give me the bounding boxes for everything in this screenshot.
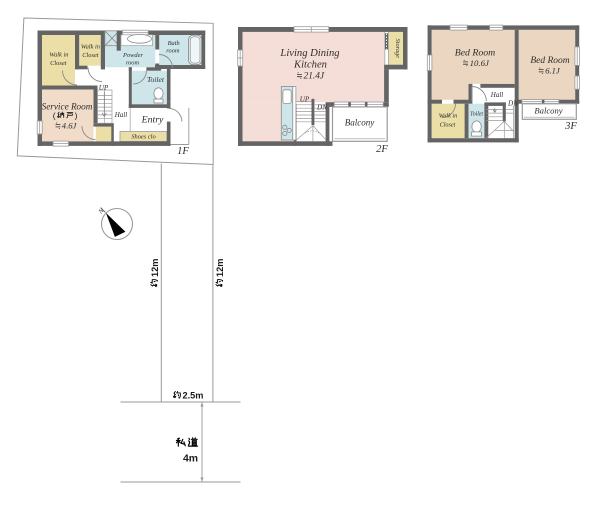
svg-text:12m: 12m bbox=[150, 259, 160, 277]
svg-text:2.5m: 2.5m bbox=[183, 391, 204, 401]
svg-text:Bath: Bath bbox=[168, 40, 180, 47]
svg-text:Powder: Powder bbox=[122, 52, 143, 59]
svg-text:DN: DN bbox=[507, 100, 519, 108]
svg-text:Balcony: Balcony bbox=[345, 118, 375, 128]
svg-text:Closet: Closet bbox=[440, 122, 456, 129]
svg-text:DN: DN bbox=[316, 103, 328, 111]
svg-text:2F: 2F bbox=[376, 144, 388, 155]
svg-text:Shoes clo: Shoes clo bbox=[131, 134, 155, 141]
svg-text:Living Dining: Living Dining bbox=[279, 48, 339, 59]
svg-text:Storage: Storage bbox=[394, 39, 401, 59]
svg-text:Hall: Hall bbox=[490, 91, 504, 99]
svg-text:Closet: Closet bbox=[50, 60, 67, 67]
svg-text:Toilet: Toilet bbox=[147, 75, 165, 84]
svg-text:10.6J: 10.6J bbox=[470, 58, 490, 68]
svg-text:12m: 12m bbox=[215, 259, 225, 277]
svg-text:4m: 4m bbox=[183, 454, 198, 465]
svg-text:4.6J: 4.6J bbox=[62, 121, 78, 131]
svg-text:Walk in: Walk in bbox=[439, 113, 458, 120]
svg-text:Entry: Entry bbox=[141, 115, 164, 126]
svg-text:Kitchen: Kitchen bbox=[293, 59, 327, 70]
svg-text:3F: 3F bbox=[564, 121, 577, 132]
svg-text:Toilet: Toilet bbox=[470, 112, 483, 118]
svg-text:Walk in: Walk in bbox=[81, 43, 100, 50]
svg-text:Service Room: Service Room bbox=[42, 102, 93, 112]
svg-text:Balcony: Balcony bbox=[534, 106, 562, 116]
svg-text:Bed Room: Bed Room bbox=[530, 56, 569, 66]
svg-text:1F: 1F bbox=[177, 146, 189, 157]
svg-text:(: ( bbox=[53, 111, 56, 121]
svg-text:UP: UP bbox=[300, 95, 310, 103]
svg-text:): ) bbox=[75, 111, 78, 121]
svg-text:6.1J: 6.1J bbox=[545, 66, 561, 76]
svg-text:Hall: Hall bbox=[114, 111, 128, 119]
svg-text:Closet: Closet bbox=[82, 52, 99, 59]
svg-text:room: room bbox=[126, 60, 140, 67]
svg-text:21.4J: 21.4J bbox=[304, 72, 325, 82]
svg-text:UP: UP bbox=[99, 84, 109, 92]
svg-text:Bed Room: Bed Room bbox=[455, 48, 496, 59]
svg-text:Walk in: Walk in bbox=[49, 52, 68, 59]
svg-text:room: room bbox=[166, 48, 180, 55]
